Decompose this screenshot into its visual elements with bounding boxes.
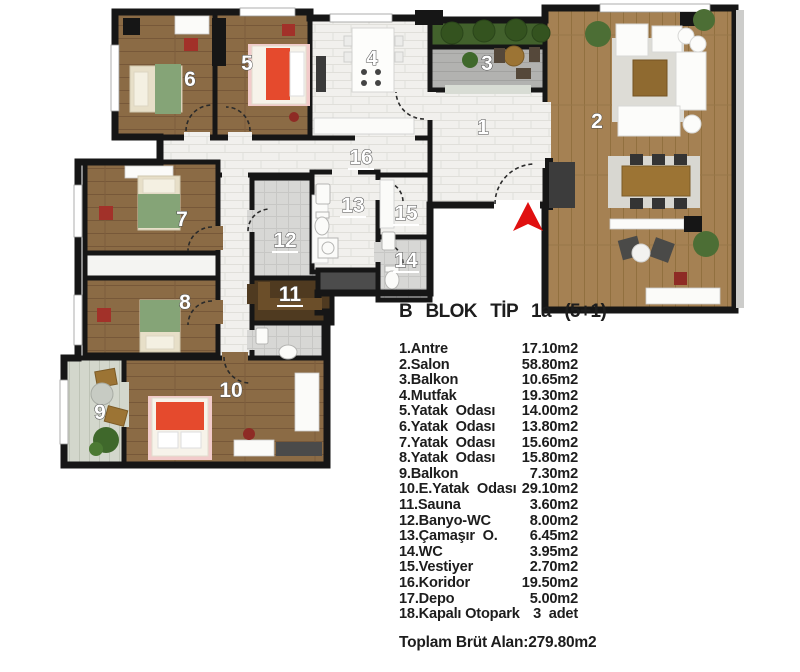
- side-table-icon: [632, 244, 650, 262]
- legend-rows: 1.Antre 17.10m2 2.Salon 58.80m2 3.Balkon…: [399, 342, 578, 623]
- legend-panel: B BLOK TİP 1a (5+1) 1.Antre 17.10m2 2.Sa…: [399, 301, 579, 652]
- legend-row: 14.WC 3.95m2: [399, 545, 578, 561]
- room-area: 17.10m2: [522, 342, 578, 358]
- dining-table-icon: [622, 166, 690, 196]
- wall-block: [212, 18, 226, 66]
- plant-icon: [89, 442, 103, 456]
- chair-icon: [529, 47, 540, 62]
- legend-row: 13.Çamaşır O. 6.45m2: [399, 529, 578, 545]
- room-area: 6.45m2: [530, 529, 578, 545]
- terrace-rail: [736, 10, 744, 308]
- table-icon: [504, 46, 524, 66]
- chair-icon: [516, 68, 531, 79]
- legend-row: 15.Vestiyer 2.70m2: [399, 560, 578, 576]
- room-label-7: 7: [176, 208, 188, 231]
- coffee-table-icon: [633, 60, 667, 96]
- room-label-1: 1: [477, 116, 489, 139]
- room-label-6: 6: [184, 68, 196, 91]
- room-name: 10.E.Yatak Odası: [399, 482, 516, 498]
- legend-row: 7.Yatak Odası 15.60m2: [399, 436, 578, 452]
- plant-icon: [462, 52, 478, 68]
- plant-icon: [693, 231, 719, 257]
- room-label-5: 5: [241, 52, 253, 75]
- room-name: 16.Koridor: [399, 576, 470, 592]
- toilet-icon: [315, 217, 329, 235]
- sauna-bench-icon: [258, 282, 270, 310]
- plant-icon: [693, 9, 715, 31]
- toilet-icon: [385, 271, 399, 289]
- room-area: 3 adet: [533, 607, 578, 623]
- room-name: 6.Yatak Odası: [399, 420, 495, 436]
- room-area: 7.30m2: [530, 467, 578, 483]
- hallway: [218, 175, 252, 358]
- room-label-13: 13: [341, 194, 364, 217]
- legend-row: 9.Balkon 7.30m2: [399, 467, 578, 483]
- chair-icon: [494, 48, 505, 63]
- legend-row: 12.Banyo-WC 8.00m2: [399, 514, 578, 530]
- room-name: 15.Vestiyer: [399, 560, 473, 576]
- room-label-2: 2: [591, 110, 603, 133]
- room-area: 2.70m2: [530, 560, 578, 576]
- wall-block: [123, 18, 140, 35]
- legend-row: 11.Sauna 3.60m2: [399, 498, 578, 514]
- tv-cabinet: [549, 162, 575, 208]
- room-area: 3.60m2: [530, 498, 578, 514]
- room-name: 18.Kapalı Otopark: [399, 607, 520, 623]
- room-name: 2.Salon: [399, 358, 450, 374]
- legend-row: 3.Balkon 10.65m2: [399, 373, 578, 389]
- legend-row: 5.Yatak Odası 14.00m2: [399, 404, 578, 420]
- room-name: 11.Sauna: [399, 498, 461, 514]
- legend-row: 8.Yatak Odası 15.80m2: [399, 451, 578, 467]
- legend-row: 2.Salon 58.80m2: [399, 358, 578, 374]
- room-area: 5.00m2: [530, 592, 578, 608]
- room-area: 58.80m2: [522, 358, 578, 374]
- room-name: 12.Banyo-WC: [399, 514, 491, 530]
- plant-icon: [585, 21, 611, 47]
- sofa-icon: [676, 52, 706, 110]
- washer-icon: [318, 238, 338, 258]
- room-label-14: 14: [394, 249, 418, 272]
- plan-title: B BLOK TİP 1a (5+1): [399, 301, 579, 323]
- room-label-4: 4: [366, 47, 378, 70]
- sink-icon: [382, 232, 395, 250]
- sofa-icon: [618, 106, 680, 136]
- sink-icon: [256, 328, 268, 344]
- room-name: 8.Yatak Odası: [399, 451, 495, 467]
- legend-row: 1.Antre 17.10m2: [399, 342, 578, 358]
- legend-row: 18.Kapalı Otopark 3 adet: [399, 607, 578, 623]
- room-area: 14.00m2: [522, 404, 578, 420]
- room-name: 3.Balkon: [399, 373, 458, 389]
- room-name: 13.Çamaşır O.: [399, 529, 498, 545]
- legend-row: 17.Depo 5.00m2: [399, 592, 578, 608]
- room-1-entry: [430, 90, 545, 205]
- legend-row: 4.Mutfak 19.30m2: [399, 389, 578, 405]
- armchair-icon: [616, 24, 648, 56]
- room-name: 9.Balkon: [399, 467, 458, 483]
- wall-block: [415, 10, 443, 25]
- closet-band: [85, 253, 218, 278]
- room-name: 5.Yatak Odası: [399, 404, 495, 420]
- legend-total-row: Toplam Brüt Alan: 279.80m2: [399, 634, 579, 652]
- room-area: 29.10m2: [522, 482, 578, 498]
- room-label-11: 11: [279, 283, 302, 306]
- room-name: 17.Depo: [399, 592, 454, 608]
- room-area: 13.80m2: [522, 420, 578, 436]
- room-name: 1.Antre: [399, 342, 448, 358]
- total-label: Toplam Brüt Alan:: [399, 634, 528, 652]
- room-label-12: 12: [273, 229, 296, 252]
- legend-row: 6.Yatak Odası 13.80m2: [399, 420, 578, 436]
- room-name: 14.WC: [399, 545, 443, 561]
- room-area: 15.80m2: [522, 451, 578, 467]
- toilet-icon: [279, 345, 297, 359]
- room-label-16: 16: [349, 146, 372, 169]
- legend-row: 10.E.Yatak Odası 29.10m2: [399, 482, 578, 498]
- floorplan-page: 1 2 3 4 5 6 7 8 9 10 11 12 13 14 15 16 B…: [0, 0, 800, 672]
- sink-icon: [316, 184, 330, 204]
- room-area: 8.00m2: [530, 514, 578, 530]
- room-area: 3.95m2: [530, 545, 578, 561]
- room-area: 19.30m2: [522, 389, 578, 405]
- room-label-9: 9: [94, 401, 106, 424]
- total-value: 279.80m2: [528, 634, 596, 652]
- room-label-8: 8: [179, 291, 191, 314]
- legend-row: 16.Koridor 19.50m2: [399, 576, 578, 592]
- room-name: 7.Yatak Odası: [399, 436, 495, 452]
- storage-cabinet: [276, 442, 322, 456]
- room-label-3: 3: [481, 52, 493, 75]
- room-area: 19.50m2: [522, 576, 578, 592]
- room-name: 4.Mutfak: [399, 389, 457, 405]
- room-area: 15.60m2: [522, 436, 578, 452]
- room-area: 10.65m2: [522, 373, 578, 389]
- room-label-15: 15: [394, 202, 418, 225]
- room-label-10: 10: [219, 379, 242, 402]
